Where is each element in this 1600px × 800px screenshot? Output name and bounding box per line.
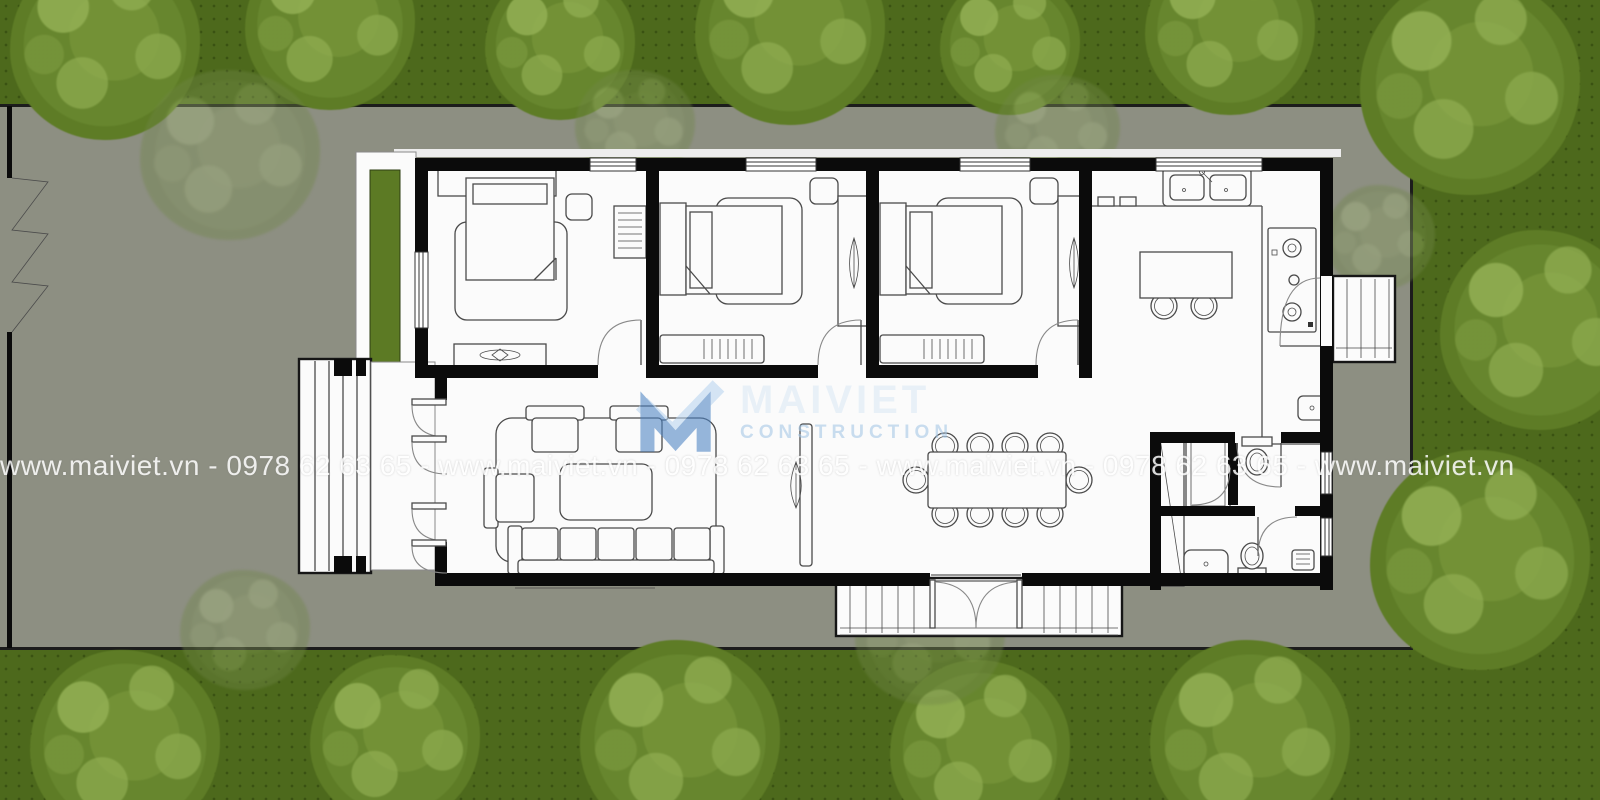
shower-icon [1186,437,1230,511]
double-bed-icon [880,203,1002,295]
window-icon [746,158,816,171]
coffee-table-icon [560,464,652,520]
shower-drain-icon [1292,550,1314,570]
sliding-gate [7,106,48,648]
double-bed-icon [660,203,782,295]
dresser-counter-icon [838,196,870,326]
nightstand-icon [566,194,592,220]
nightstand-icon [1030,178,1058,204]
window-icon [1156,158,1262,171]
bench-icon [880,335,984,363]
bench-icon [660,335,764,363]
planter-strip [370,170,400,366]
site-plan-scene: www.maiviet.vn - 0978 62 63 65 - www.mai… [0,0,1600,800]
side-steps [1333,276,1395,362]
floor-plan [0,0,1600,800]
sofa-icon [508,526,724,574]
armchair-icon [610,406,668,452]
dining-table-icon [928,452,1066,508]
armchair-icon [526,406,584,452]
window-icon [590,158,636,171]
window-icon [960,158,1030,171]
kitchen-sink-icon [1163,168,1251,206]
window-icon [415,252,428,328]
window-icon [1321,518,1332,556]
window-icon [1321,452,1332,494]
wardrobe-icon [614,206,646,258]
nightstand-icon [810,178,838,204]
dresser-icon [454,344,546,366]
armchair-icon [484,468,534,528]
